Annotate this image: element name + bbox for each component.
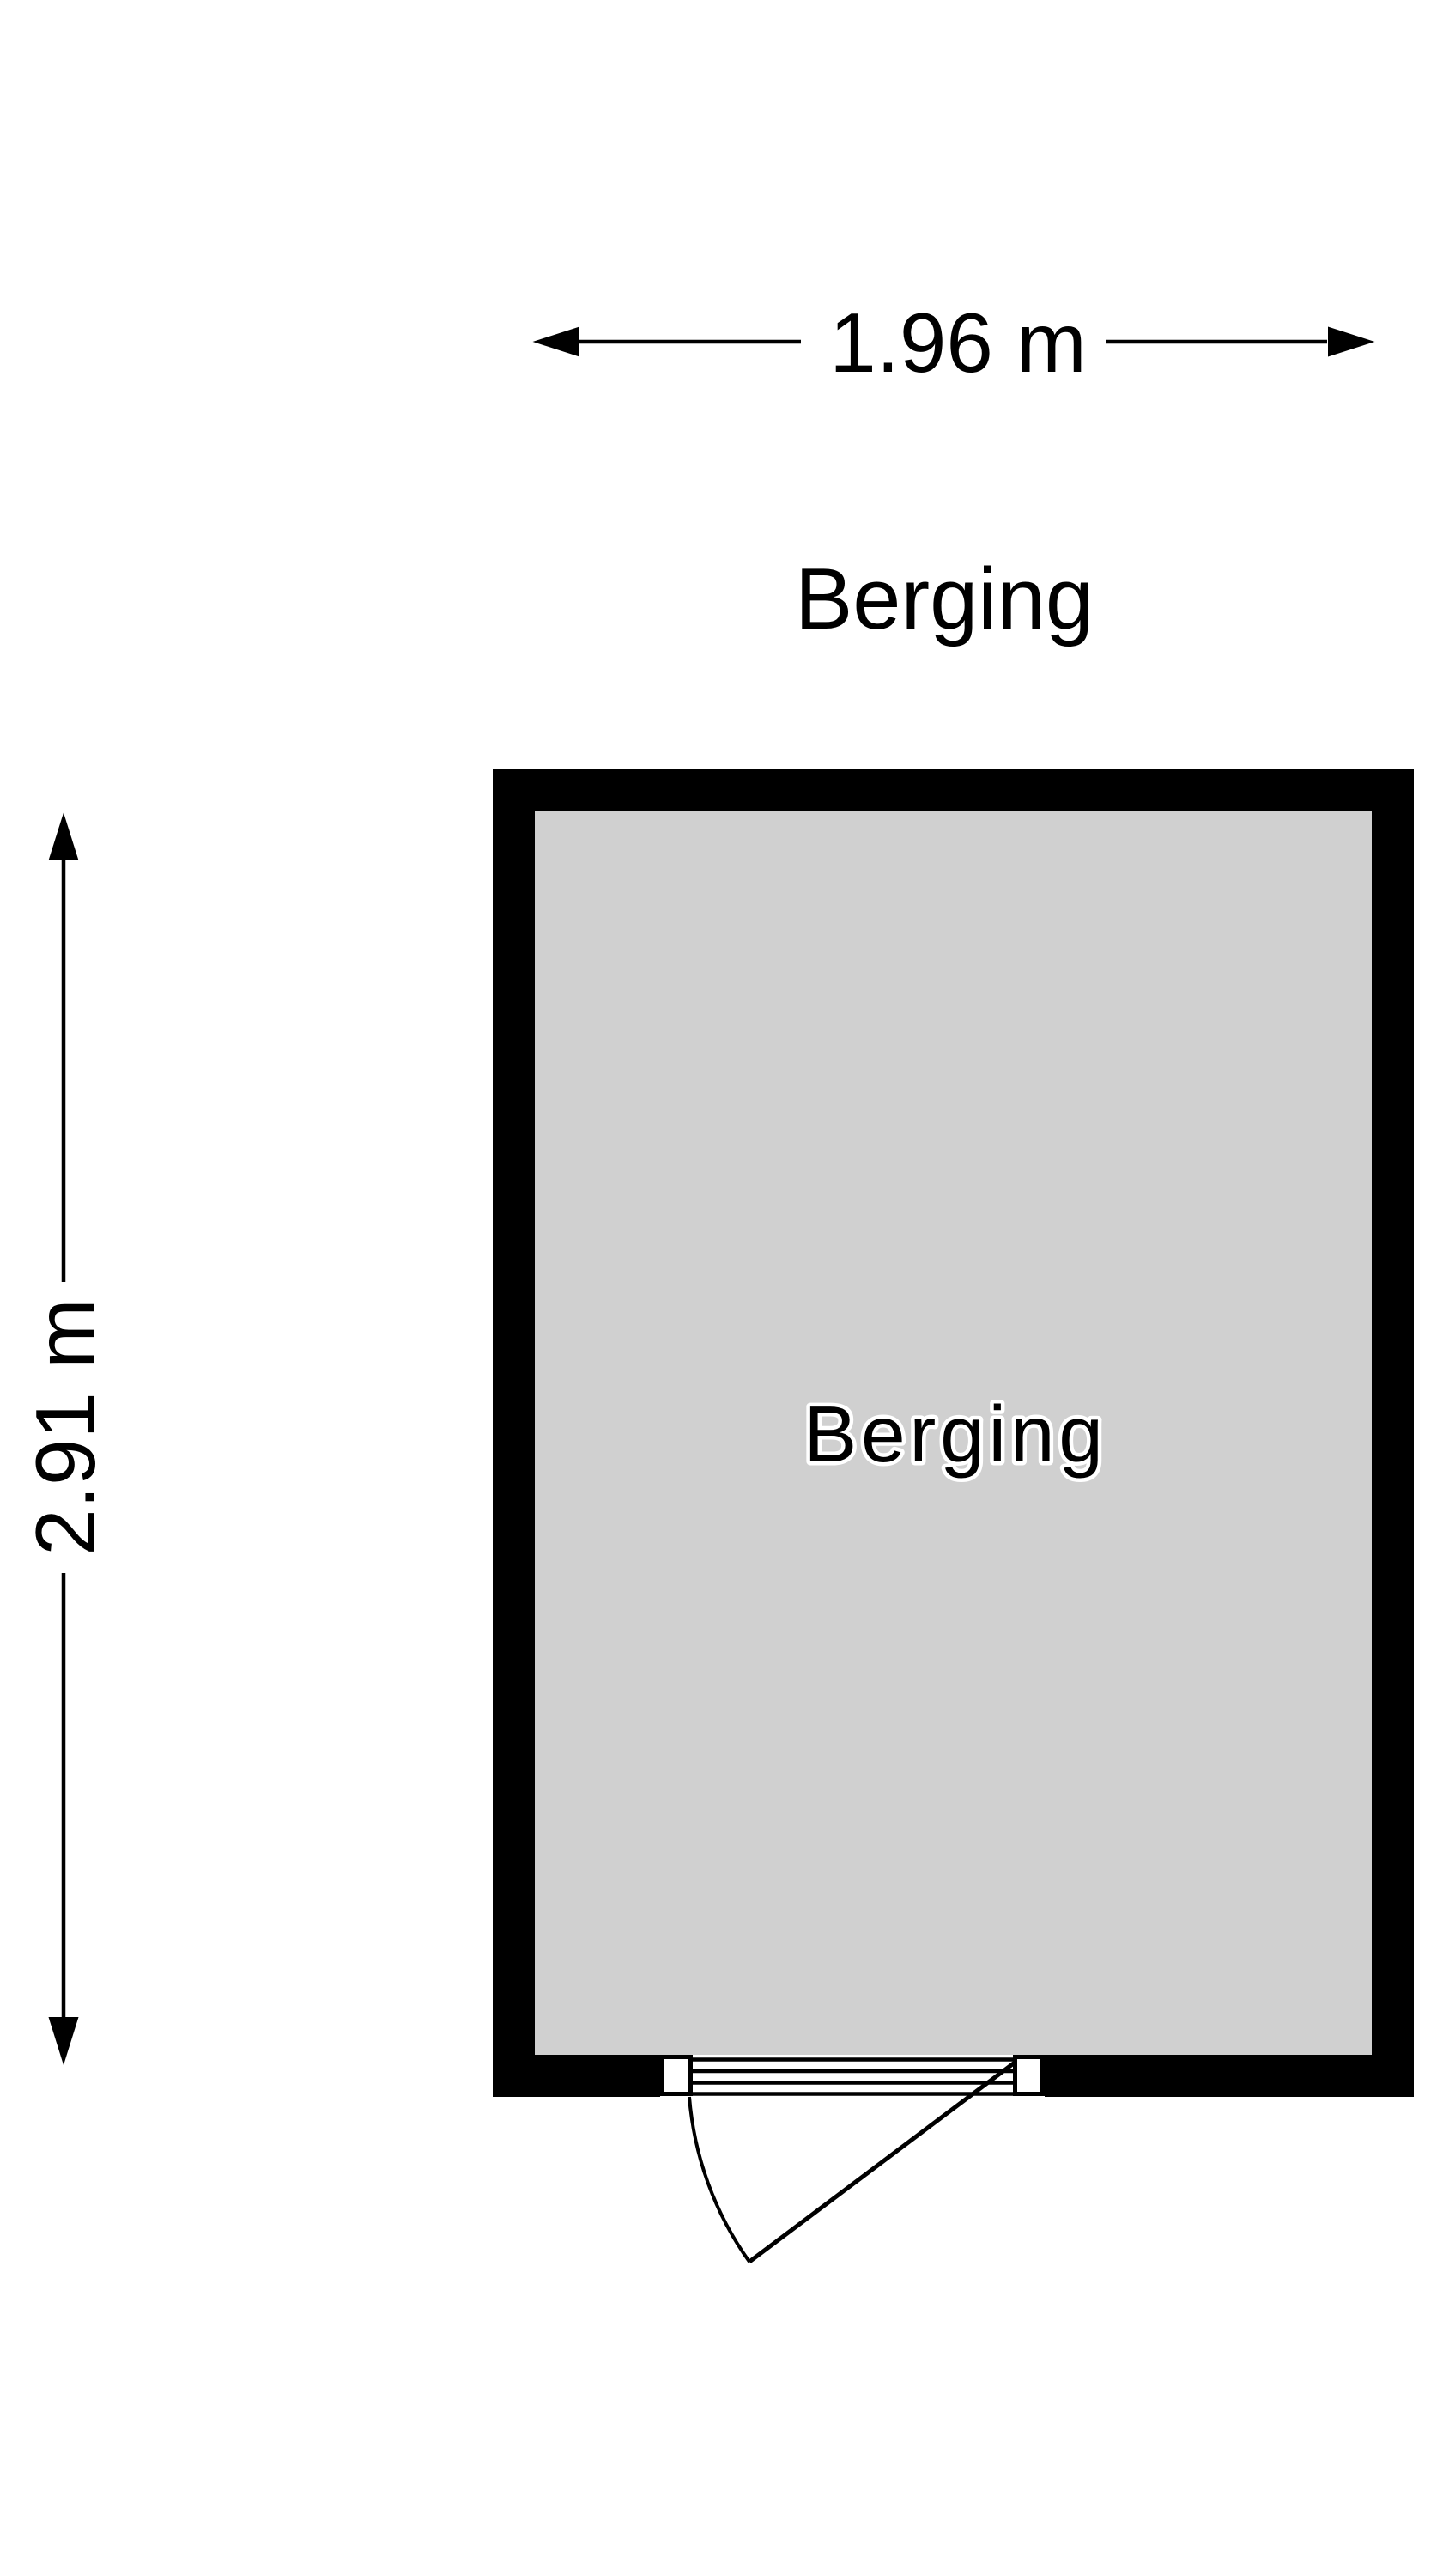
svg-text:Berging: Berging [795,551,1094,647]
svg-text:Berging: Berging [803,1389,1106,1479]
svg-text:2.91 m: 2.91 m [18,1298,112,1556]
svg-text:1.96 m: 1.96 m [829,295,1087,390]
